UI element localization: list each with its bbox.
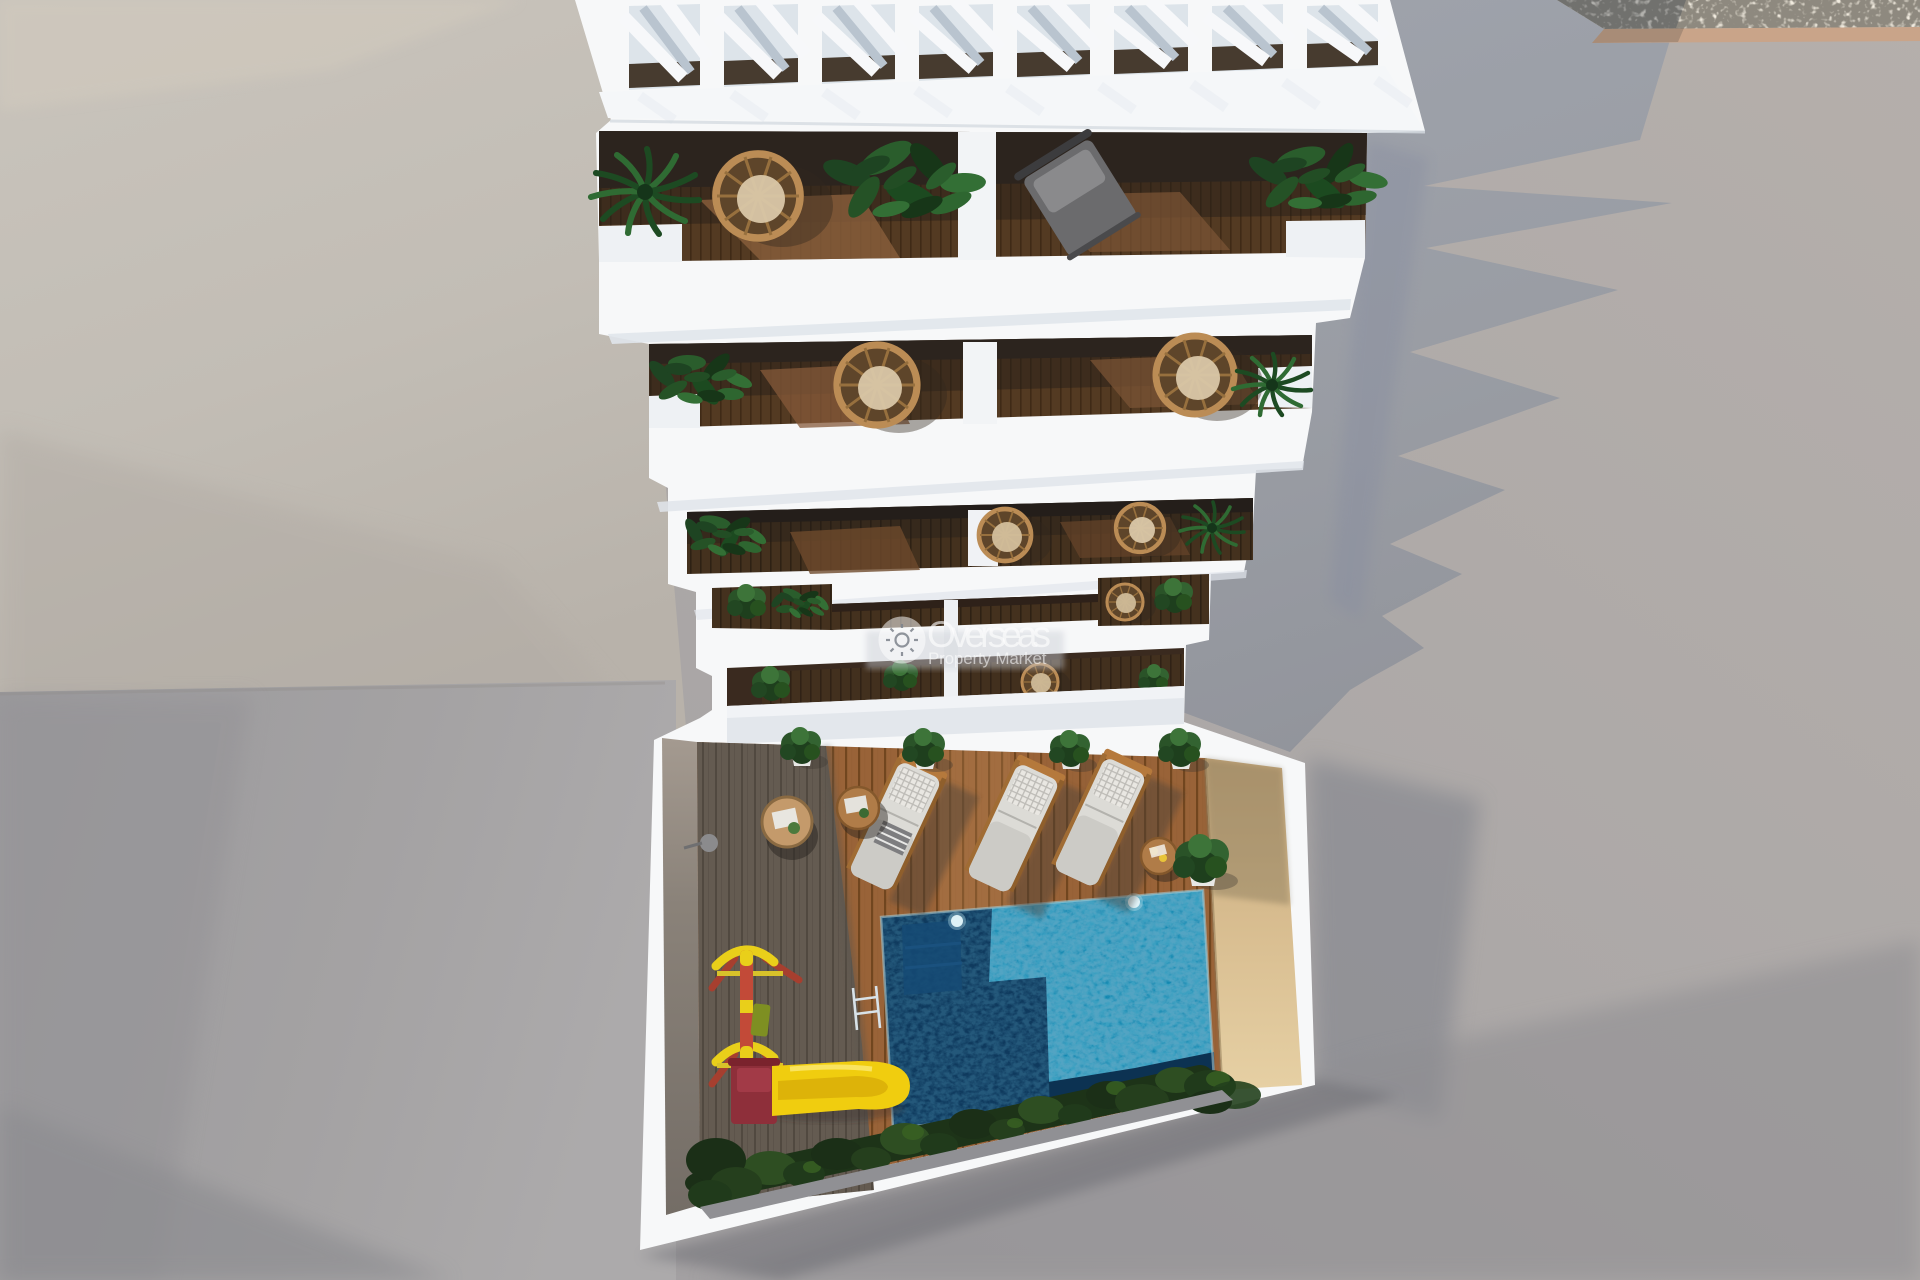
svg-text:Property Market: Property Market: [928, 649, 1047, 668]
